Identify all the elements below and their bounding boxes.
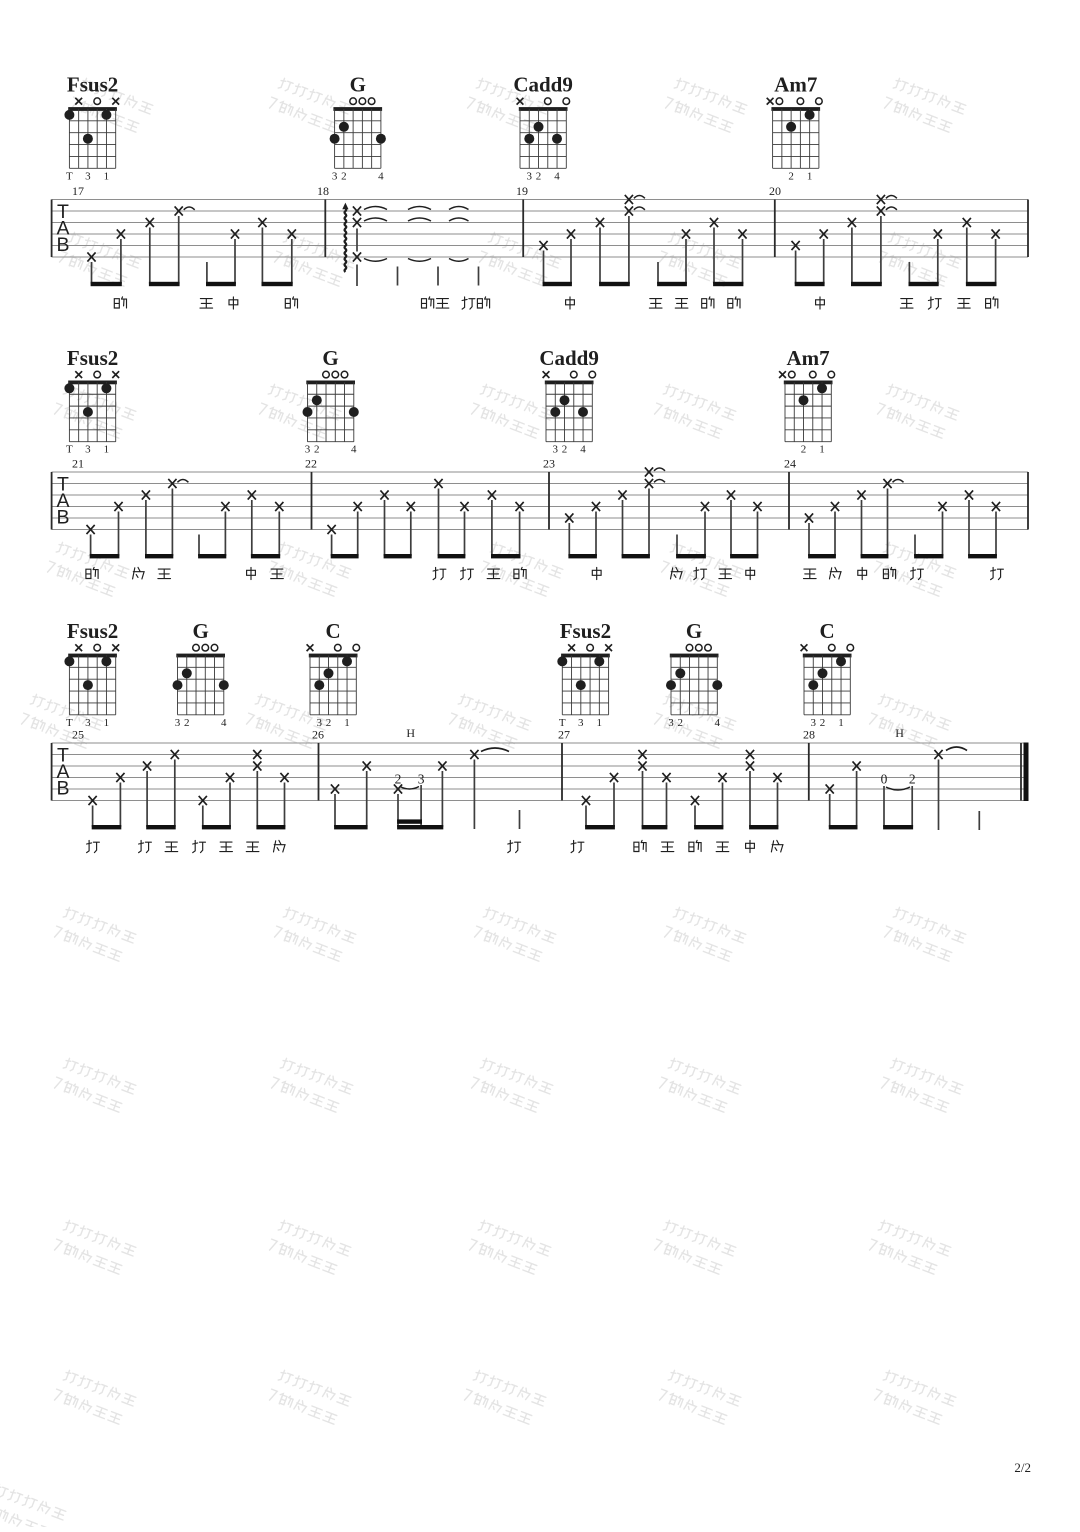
svg-text:3: 3 <box>527 170 533 182</box>
svg-text:2: 2 <box>678 717 684 729</box>
svg-text:20: 20 <box>769 184 781 198</box>
svg-text:1: 1 <box>104 717 110 729</box>
svg-text:Cadd9: Cadd9 <box>513 73 573 97</box>
svg-text:1: 1 <box>104 170 110 182</box>
svg-text:T: T <box>66 170 73 182</box>
svg-text:25: 25 <box>72 728 84 742</box>
svg-text:2: 2 <box>788 170 794 182</box>
svg-text:B: B <box>56 234 69 256</box>
svg-text:2: 2 <box>820 717 826 729</box>
svg-text:23: 23 <box>543 457 555 471</box>
svg-text:1: 1 <box>819 444 825 456</box>
svg-text:Fsus2: Fsus2 <box>67 73 118 97</box>
svg-text:4: 4 <box>351 444 357 456</box>
svg-text:17: 17 <box>72 184 84 198</box>
svg-text:B: B <box>56 507 69 529</box>
svg-text:2: 2 <box>314 444 320 456</box>
svg-text:3: 3 <box>85 444 91 456</box>
svg-text:C: C <box>820 619 835 643</box>
svg-text:4: 4 <box>715 717 721 729</box>
svg-text:4: 4 <box>554 170 560 182</box>
svg-text:3: 3 <box>418 772 425 787</box>
svg-text:3: 3 <box>578 717 584 729</box>
svg-text:H: H <box>406 726 415 740</box>
svg-text:18: 18 <box>317 184 329 198</box>
svg-text:4: 4 <box>221 717 227 729</box>
svg-text:G: G <box>322 346 338 370</box>
svg-text:2: 2 <box>536 170 542 182</box>
svg-text:27: 27 <box>558 728 570 742</box>
svg-text:3: 3 <box>85 717 91 729</box>
svg-text:Cadd9: Cadd9 <box>539 346 599 370</box>
svg-text:1: 1 <box>838 717 844 729</box>
svg-text:2: 2 <box>341 170 347 182</box>
svg-text:Fsus2: Fsus2 <box>67 346 118 370</box>
svg-text:24: 24 <box>784 457 796 471</box>
svg-text:2: 2 <box>909 772 916 787</box>
svg-text:3: 3 <box>553 444 559 456</box>
svg-text:19: 19 <box>516 184 528 198</box>
svg-text:2: 2 <box>326 717 332 729</box>
svg-text:22: 22 <box>305 457 317 471</box>
svg-text:T: T <box>66 444 73 456</box>
svg-text:C: C <box>326 619 341 643</box>
svg-text:1: 1 <box>104 444 110 456</box>
svg-text:Fsus2: Fsus2 <box>67 619 118 643</box>
svg-text:G: G <box>686 619 702 643</box>
svg-text:4: 4 <box>580 444 586 456</box>
svg-text:4: 4 <box>378 170 384 182</box>
svg-text:28: 28 <box>803 728 815 742</box>
svg-text:1: 1 <box>807 170 813 182</box>
svg-text:H: H <box>895 726 904 740</box>
svg-text:3: 3 <box>85 170 91 182</box>
svg-text:21: 21 <box>72 457 84 471</box>
svg-text:G: G <box>193 619 209 643</box>
svg-text:2: 2 <box>562 444 568 456</box>
svg-text:26: 26 <box>312 728 324 742</box>
svg-text:Am7: Am7 <box>774 73 817 97</box>
svg-text:B: B <box>56 778 69 800</box>
svg-text:2: 2 <box>395 772 402 787</box>
svg-text:2/2: 2/2 <box>1014 1460 1031 1475</box>
svg-text:G: G <box>350 73 366 97</box>
svg-text:0: 0 <box>881 772 888 787</box>
svg-text:2: 2 <box>184 717 190 729</box>
svg-text:3: 3 <box>305 444 311 456</box>
svg-text:1: 1 <box>344 717 350 729</box>
svg-text:3: 3 <box>668 717 674 729</box>
svg-text:3: 3 <box>332 170 338 182</box>
svg-text:Am7: Am7 <box>787 346 830 370</box>
svg-text:1: 1 <box>597 717 603 729</box>
svg-text:2: 2 <box>801 444 807 456</box>
svg-text:Fsus2: Fsus2 <box>560 619 611 643</box>
svg-text:3: 3 <box>175 717 181 729</box>
